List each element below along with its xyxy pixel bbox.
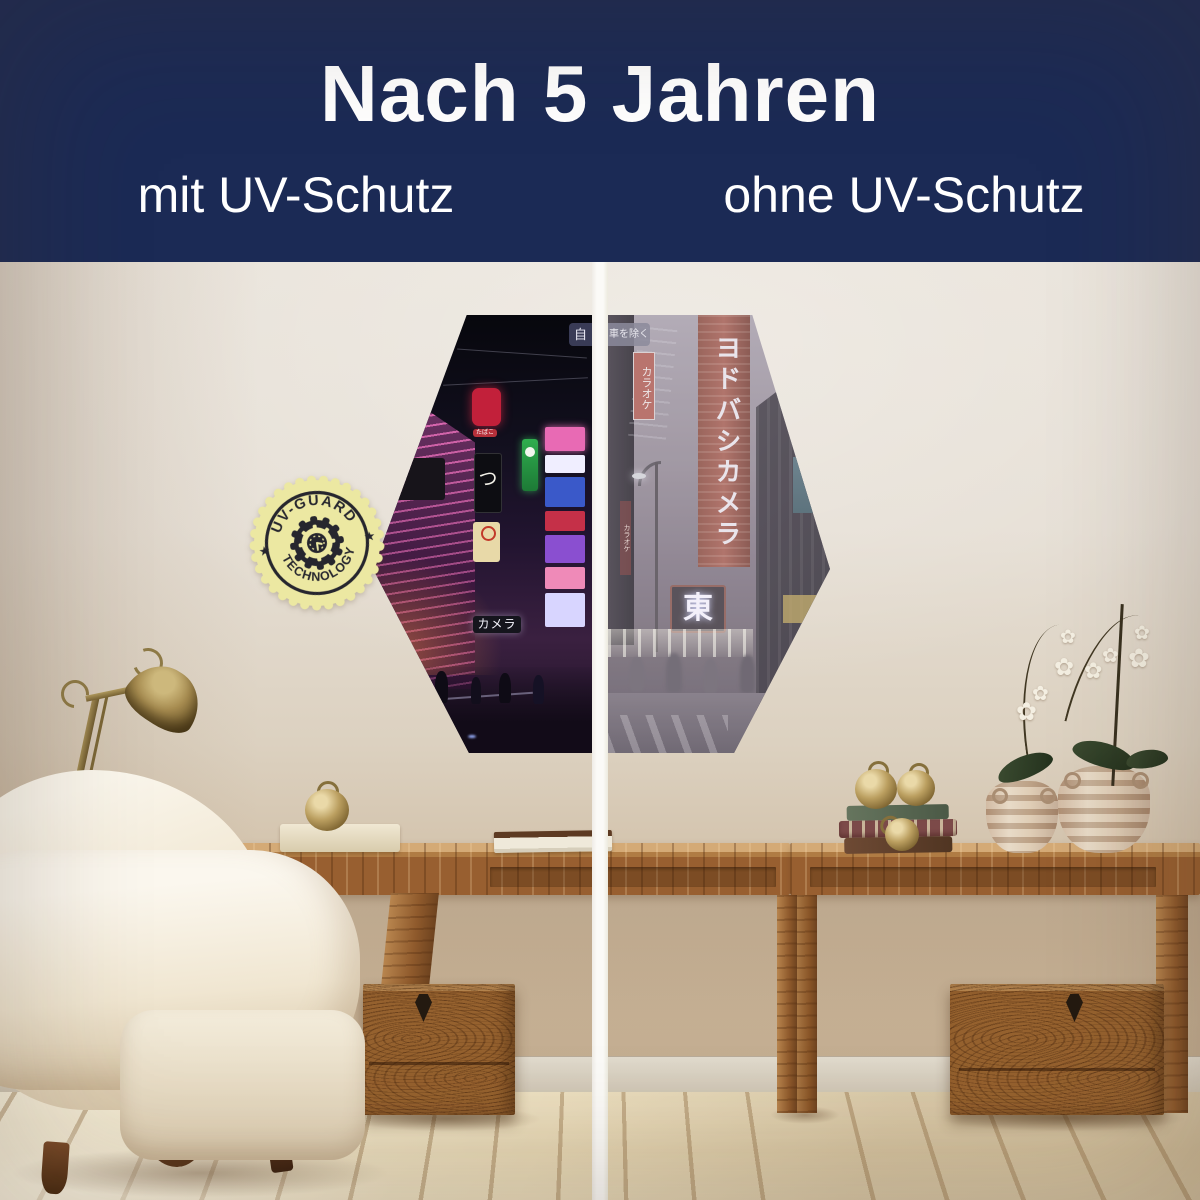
brass-ball-tilted xyxy=(885,818,919,851)
street-lamp-head xyxy=(632,473,646,479)
badge-star-right: ★ xyxy=(363,528,377,544)
vase-handle xyxy=(1040,788,1056,804)
uv-guard-badge-svg: UV-GUARD TECHNOLOGY ★ ★ xyxy=(232,458,401,627)
road-sign-right-fragment: 車を除く xyxy=(608,323,650,346)
label-with-uv: mit UV-Schutz xyxy=(0,166,592,224)
neon-block xyxy=(545,535,585,563)
power-line xyxy=(443,377,588,386)
chair-seat xyxy=(120,1010,365,1160)
storefront-lights xyxy=(608,629,753,657)
vase-handle xyxy=(1132,772,1149,789)
camera-sign: カメラ xyxy=(473,616,521,633)
karaoke-sign: カラオケ xyxy=(633,352,655,420)
page-title: Nach 5 Jahren xyxy=(0,48,1200,140)
console-groove xyxy=(490,867,776,887)
street-lamp-pole xyxy=(655,462,658,652)
orchid-leaf xyxy=(1125,747,1169,771)
orchid-flower: ✿ xyxy=(1032,684,1049,704)
fire-escape xyxy=(628,321,678,439)
label-without-uv: ohne UV-Schutz xyxy=(608,166,1200,224)
yodobashi-facade xyxy=(698,315,750,567)
neon-block xyxy=(545,567,585,589)
boucle-armchair xyxy=(0,760,420,1200)
product-mockup-image: Nach 5 Jahren mit UV-Schutz ohne UV-Schu… xyxy=(0,0,1200,1200)
department-store-sign: ヨドバシカメラ xyxy=(704,319,746,565)
console-groove xyxy=(810,867,1156,887)
neon-reflection xyxy=(468,735,476,738)
orchid-flower: ✿ xyxy=(1102,646,1119,666)
power-line xyxy=(457,348,587,358)
neon-block xyxy=(545,511,585,531)
karaoke-column-sign: カラオケ xyxy=(620,501,631,575)
comparison-divider xyxy=(592,262,608,1200)
orchid-flower: ✿ xyxy=(1060,628,1076,647)
leather-pull xyxy=(1066,994,1083,1022)
east-neon-sign: 東 xyxy=(670,585,726,633)
uv-guard-badge: UV-GUARD TECHNOLOGY ★ ★ xyxy=(232,458,401,627)
brass-ball xyxy=(897,770,935,806)
drawer-box-right xyxy=(950,984,1164,1115)
street-lamp-arm xyxy=(638,461,661,486)
neon-block xyxy=(545,593,585,627)
header-band: Nach 5 Jahren mit UV-Schutz ohne UV-Schu… xyxy=(0,0,1200,262)
calligraphy-sign: つ xyxy=(474,453,502,513)
lamp-shade xyxy=(117,652,212,742)
vase-handle xyxy=(992,788,1008,804)
console-leg xyxy=(797,895,817,1113)
pedestrian-silhouette xyxy=(499,673,511,703)
orchid-flower: ✿ xyxy=(1084,660,1102,682)
road-sign-left-fragment: 自 xyxy=(569,323,592,346)
neon-block xyxy=(545,427,585,451)
faded-pedestrian xyxy=(630,657,644,691)
yellow-sign-logo xyxy=(481,526,496,541)
neon-block xyxy=(545,477,585,507)
orchid-leaf xyxy=(1070,735,1138,776)
tobacco-sign: たばこ xyxy=(473,429,497,437)
red-sign xyxy=(472,388,501,426)
faded-pedestrian xyxy=(740,655,755,693)
pedestrian-silhouette xyxy=(471,677,481,704)
pedestrian-silhouette xyxy=(533,675,544,704)
brass-ball xyxy=(855,769,897,809)
faded-building-edge xyxy=(608,315,634,645)
faded-pedestrian xyxy=(666,653,682,693)
faded-pedestrian xyxy=(704,659,717,693)
neon-sign-column xyxy=(545,427,585,627)
orchid-flower: ✿ xyxy=(1128,645,1150,671)
console-leg xyxy=(777,895,797,1113)
green-sign-dot xyxy=(525,447,535,457)
badge-star-left: ★ xyxy=(258,543,272,559)
neon-block xyxy=(545,455,585,473)
vase-handle xyxy=(1064,772,1081,789)
faded-crosswalk xyxy=(608,715,728,753)
orchid-flower: ✿ xyxy=(1134,624,1150,643)
orchid-flower: ✿ xyxy=(1054,656,1074,680)
drawer-seam xyxy=(959,1068,1156,1071)
